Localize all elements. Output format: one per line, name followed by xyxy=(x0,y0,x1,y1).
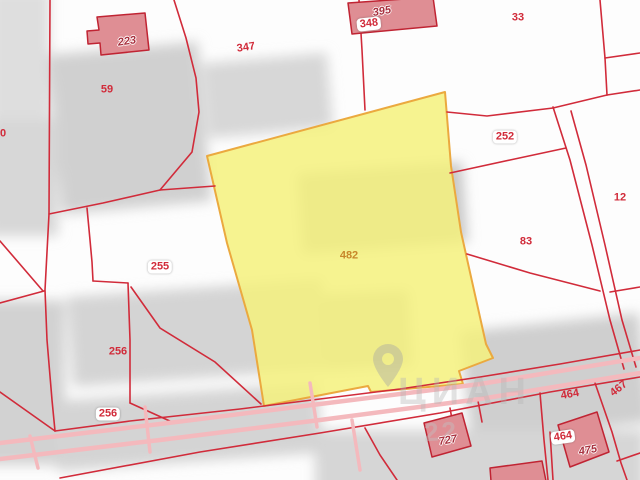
watermark-numbers: 22 xyxy=(423,416,459,448)
cadastral-map[interactable]: ЦИАН 22 80593473325212832554822562564644… xyxy=(0,0,640,480)
building-223[interactable] xyxy=(87,13,149,55)
watermark-text: ЦИАН xyxy=(398,371,532,413)
map-canvas: ЦИАН 22 xyxy=(0,0,640,480)
building-348[interactable] xyxy=(348,0,437,34)
